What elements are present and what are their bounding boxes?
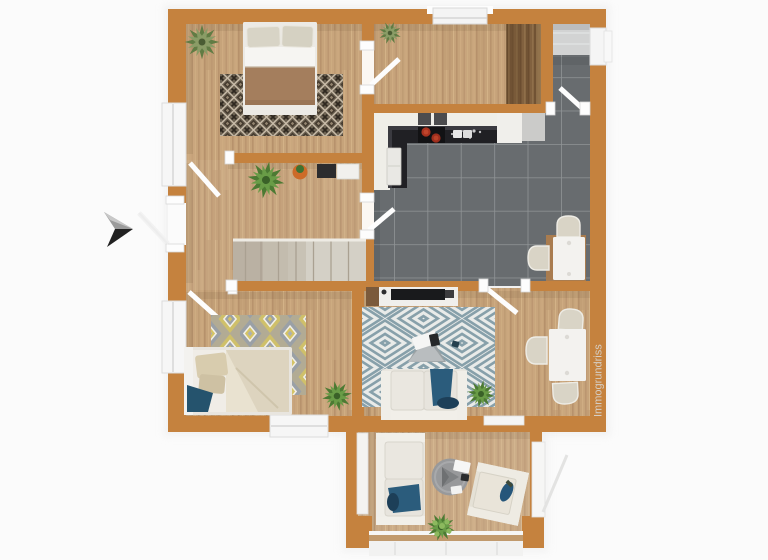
svg-text:Immogrundriss: Immogrundriss xyxy=(593,344,605,417)
